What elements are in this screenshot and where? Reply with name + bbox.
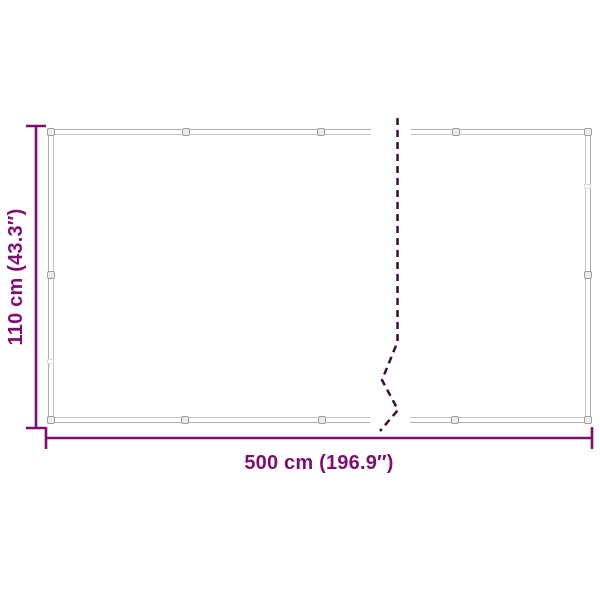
grommet	[183, 129, 190, 136]
grommet	[48, 129, 55, 136]
grommet	[585, 272, 592, 279]
grommet	[318, 129, 325, 136]
tarp-frame	[48, 130, 591, 423]
product-dimension-diagram: 110 cm (43.3″) 500 cm (196.9″)	[0, 0, 600, 600]
hem-seam-left	[48, 360, 54, 364]
diagram-drawing	[0, 0, 600, 600]
grommet	[452, 417, 459, 424]
width-dimension-line	[46, 427, 592, 449]
break-line	[380, 118, 398, 431]
grommet	[48, 272, 55, 279]
grommet	[585, 417, 592, 424]
grommets	[48, 129, 592, 424]
grommet	[453, 129, 460, 136]
hem-seam-right	[585, 185, 591, 189]
frame-outer-line	[49, 130, 591, 423]
height-dimension-label: 110 cm (43.3″)	[1, 117, 31, 437]
grommet	[182, 417, 189, 424]
grommet	[48, 417, 55, 424]
grommet	[585, 129, 592, 136]
grommet	[319, 417, 326, 424]
width-dimension-label: 500 cm (196.9″)	[46, 452, 592, 475]
frame-inner-line	[54, 135, 586, 418]
